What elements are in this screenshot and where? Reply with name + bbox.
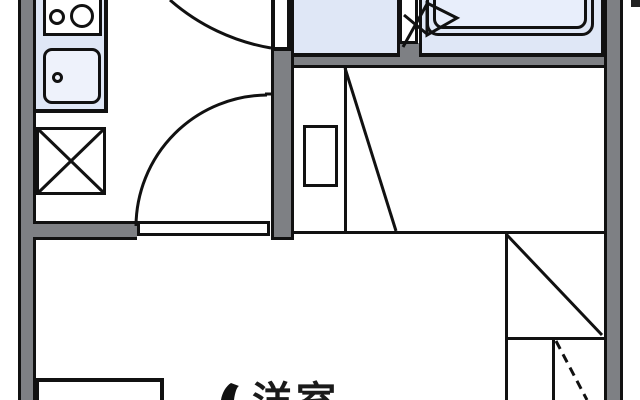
- wall-room-top: [33, 221, 137, 240]
- bathroom-folding-door-leaf: [399, 0, 418, 44]
- washroom-floor: [291, 0, 400, 57]
- room-label: 洋室: [252, 381, 340, 400]
- bottom-cabinet: [35, 378, 164, 400]
- upper-door-arc: [170, 0, 271, 48]
- corner-wall-mark: [631, 0, 640, 7]
- closet-left-line: [505, 233, 508, 400]
- bathtub-inner: [433, 0, 587, 29]
- closet-bifold-dashed: [556, 341, 587, 400]
- hallway-divider-line: [344, 67, 347, 233]
- stove-burner-large: [70, 4, 94, 28]
- closet-diagonal: [507, 235, 602, 335]
- closet-lower-divider-line: [552, 339, 555, 400]
- lower-door-arc: [136, 95, 267, 226]
- wall-left: [18, 0, 36, 400]
- upper-door-leaf: [271, 0, 291, 51]
- floor-plan: 洋室: [0, 0, 640, 400]
- wall-center-column: [271, 48, 294, 240]
- entrance-step-line: [294, 231, 604, 234]
- wall-right: [604, 0, 623, 400]
- label-partial-glyph: [221, 383, 239, 400]
- lower-door-leaf: [137, 221, 270, 236]
- stove-burner-small: [49, 9, 65, 25]
- refrigerator-space: [36, 127, 106, 195]
- hallway-door-diagonal: [345, 68, 396, 231]
- sink-drain: [52, 72, 63, 83]
- washing-machine-pan: [303, 125, 338, 187]
